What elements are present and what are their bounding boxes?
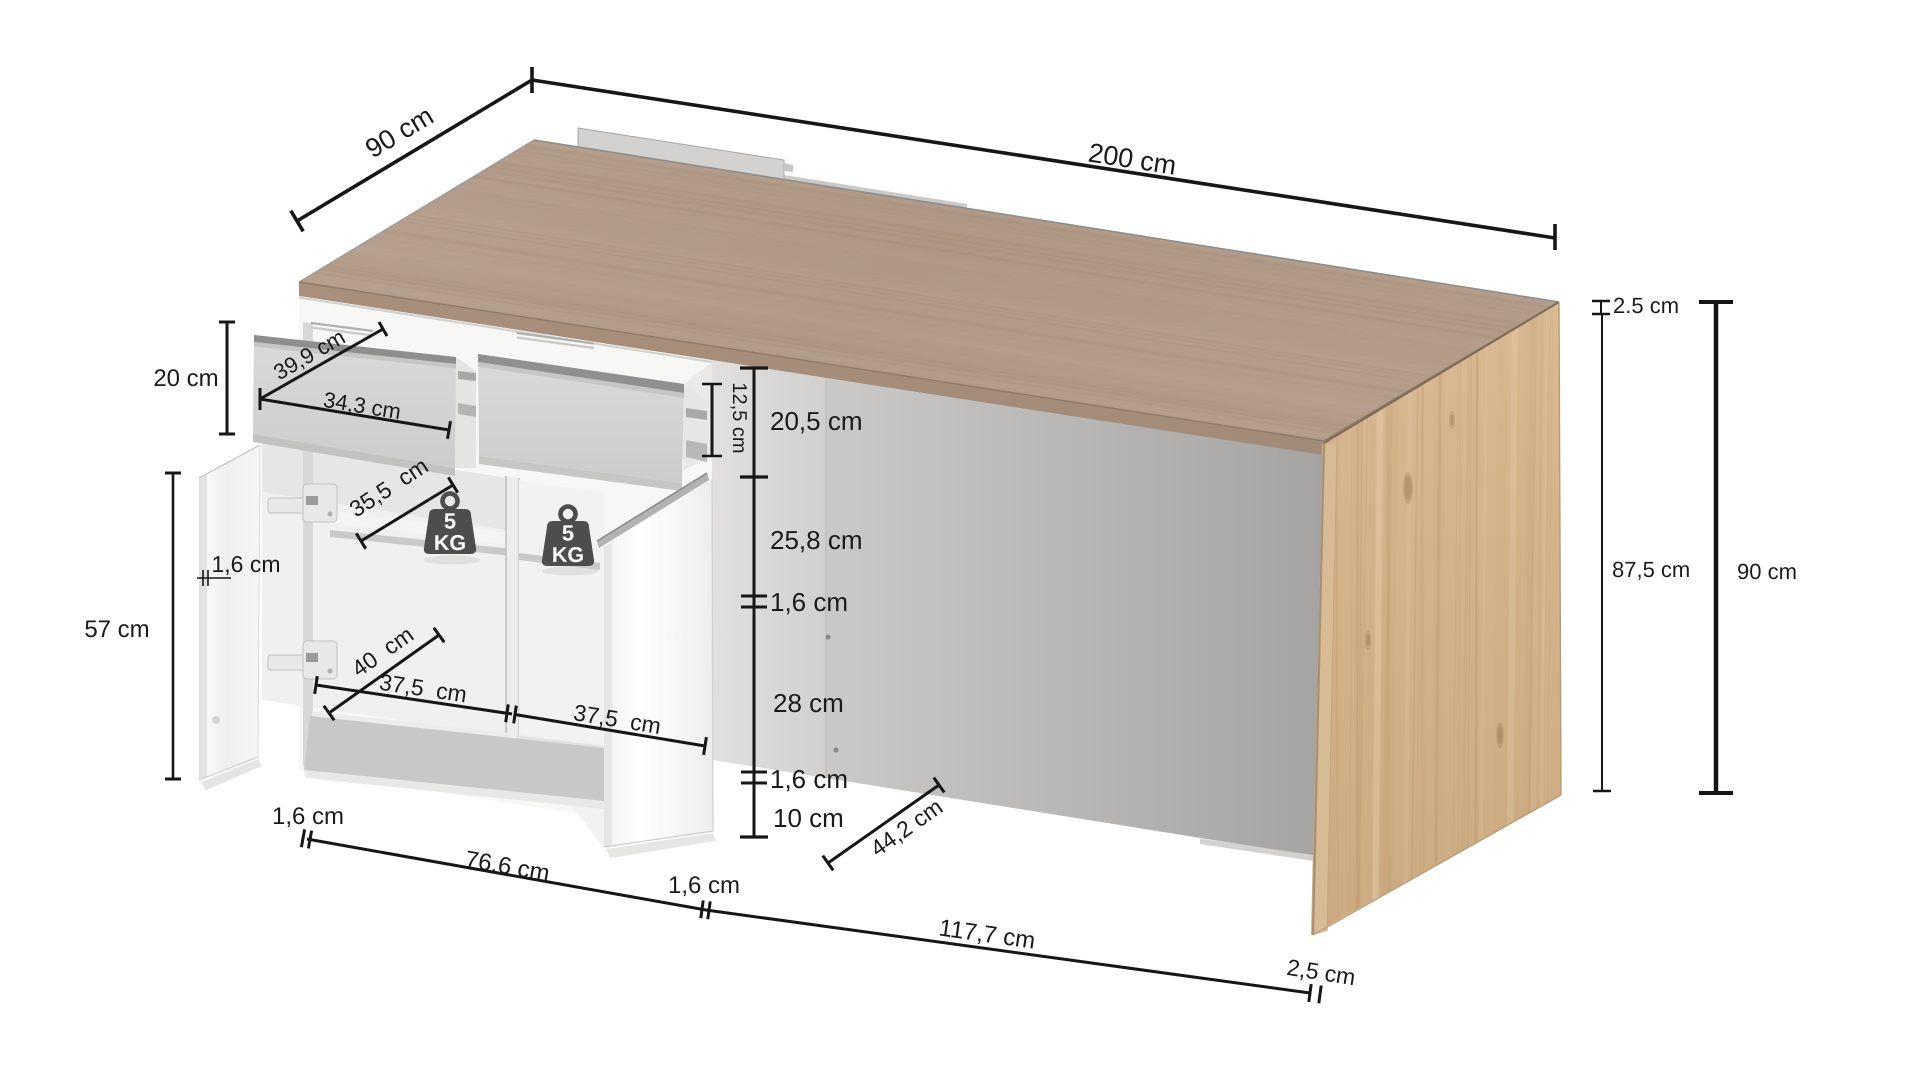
svg-text:1,6 cm: 1,6 cm (211, 551, 280, 577)
svg-text:12,5 cm: 12,5 cm (728, 382, 750, 453)
svg-text:1,6 cm: 1,6 cm (770, 764, 848, 794)
svg-text:KG: KG (434, 531, 466, 555)
svg-text:1,6 cm: 1,6 cm (272, 803, 344, 830)
svg-text:25,8 cm: 25,8 cm (770, 525, 863, 555)
svg-text:87,5 cm: 87,5 cm (1612, 557, 1690, 582)
svg-text:KG: KG (552, 543, 584, 567)
svg-text:1,6 cm: 1,6 cm (770, 587, 848, 617)
svg-text:5: 5 (562, 521, 574, 546)
svg-text:10 cm: 10 cm (773, 803, 844, 833)
svg-text:57 cm: 57 cm (84, 616, 149, 643)
svg-text:5: 5 (444, 509, 456, 534)
svg-text:28 cm: 28 cm (773, 688, 844, 718)
svg-text:90 cm: 90 cm (1737, 559, 1797, 584)
svg-text:20,5 cm: 20,5 cm (770, 406, 863, 436)
svg-text:20 cm: 20 cm (153, 365, 218, 392)
svg-text:1,6 cm: 1,6 cm (668, 872, 740, 899)
svg-text:2.5 cm: 2.5 cm (1613, 293, 1679, 318)
